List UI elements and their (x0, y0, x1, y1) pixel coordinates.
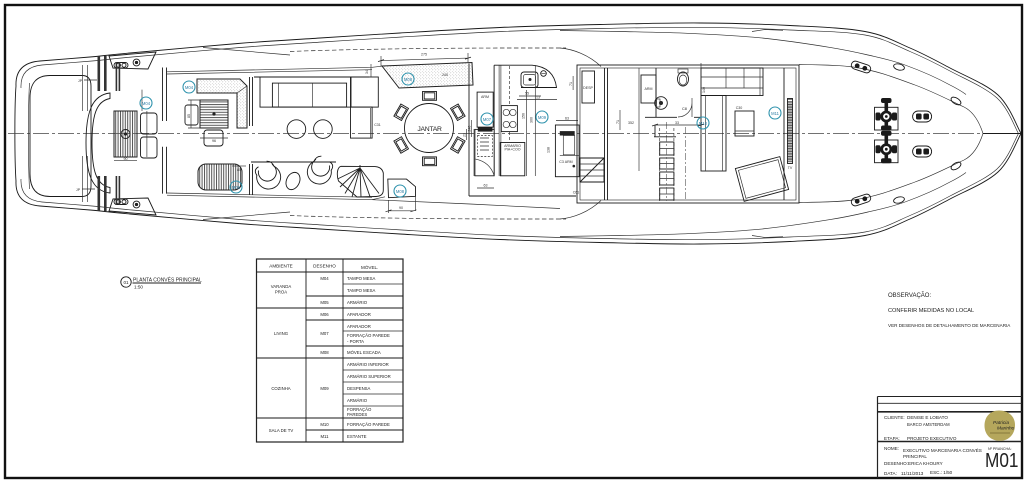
svg-text:PIA+COO: PIA+COO (504, 148, 520, 152)
svg-text:71: 71 (569, 82, 573, 86)
svg-text:ARM: ARM (645, 87, 653, 91)
svg-text:MÓVEL ESCADA: MÓVEL ESCADA (347, 350, 381, 355)
svg-text:275: 275 (421, 53, 427, 57)
svg-text:DATA:: DATA: (884, 471, 897, 476)
svg-text:M05: M05 (232, 185, 241, 190)
svg-text:PLANTA CONVÉS PRINCIPAL: PLANTA CONVÉS PRINCIPAL (133, 277, 202, 284)
svg-text:ERICA KHOURY: ERICA KHOURY (908, 461, 943, 466)
svg-text:FORRAÇÃO PAREDE: FORRAÇÃO PAREDE (347, 333, 390, 338)
svg-text:C8: C8 (682, 107, 687, 111)
svg-text:M04: M04 (320, 276, 329, 281)
svg-text:M11: M11 (320, 434, 329, 439)
svg-text:1:50: 1:50 (134, 285, 143, 290)
svg-text:ESTANTE: ESTANTE (347, 434, 367, 439)
svg-text:TAMPO MESA: TAMPO MESA (347, 288, 375, 293)
svg-text:COZINHA: COZINHA (271, 386, 290, 391)
svg-text:NOME:: NOME: (884, 446, 899, 451)
svg-text:BARCO AMSTERDAM: BARCO AMSTERDAM (907, 422, 950, 427)
svg-text:71: 71 (616, 120, 620, 124)
svg-text:TAMPO MESA: TAMPO MESA (347, 276, 375, 281)
svg-text:ARMÁRIO SUPERIOR: ARMÁRIO SUPERIOR (347, 374, 391, 379)
svg-text:DENISE E LOBATO: DENISE E LOBATO (907, 415, 948, 420)
svg-text:M04: M04 (185, 85, 194, 90)
svg-text:PAREDES: PAREDES (347, 412, 367, 417)
svg-text:M10: M10 (699, 121, 708, 126)
svg-text:DESENHO: DESENHO (313, 264, 336, 269)
svg-text:TV: TV (788, 166, 793, 170)
svg-text:M11: M11 (771, 111, 780, 116)
svg-text:PROJETO EXECUTIVO: PROJETO EXECUTIVO (907, 436, 957, 441)
svg-text:85: 85 (237, 168, 241, 172)
svg-text:M08: M08 (396, 189, 405, 194)
svg-text:13: 13 (536, 96, 540, 100)
svg-text:C30: C30 (736, 106, 743, 110)
svg-text:C61: C61 (573, 191, 580, 195)
svg-text:M04: M04 (142, 101, 151, 106)
svg-text:C3 ARM: C3 ARM (559, 160, 572, 164)
svg-text:AMBIENTE: AMBIENTE (269, 264, 292, 269)
svg-text:23: 23 (463, 133, 467, 137)
svg-text:352: 352 (628, 121, 634, 125)
svg-text:M10: M10 (320, 422, 329, 427)
svg-text:Patricia: Patricia (993, 420, 1009, 426)
svg-text:Marinho: Marinho (997, 426, 1015, 432)
svg-text:ESC.: 1/50: ESC.: 1/50 (930, 470, 953, 475)
svg-text:JANTAR: JANTAR (417, 126, 442, 133)
svg-text:VARANDA: VARANDA (271, 284, 292, 289)
svg-text:138: 138 (547, 147, 551, 153)
svg-text:FORRAÇÃO PAREDE: FORRAÇÃO PAREDE (347, 422, 390, 427)
svg-text:240: 240 (442, 73, 448, 77)
svg-text:63: 63 (565, 117, 569, 121)
svg-text:11/11/2013: 11/11/2013 (901, 471, 924, 476)
svg-text:85: 85 (187, 114, 191, 118)
svg-text:63: 63 (484, 184, 488, 188)
svg-text:VER DESENHOS DE DETALHAMENTO D: VER DESENHOS DE DETALHAMENTO DE MARCENAR… (888, 323, 1011, 328)
svg-text:DESPENSA: DESPENSA (347, 386, 371, 391)
svg-text:M05: M05 (320, 300, 329, 305)
svg-text:JP: JP (78, 79, 83, 83)
svg-text:M09: M09 (320, 386, 329, 391)
svg-text:CLIENTE:: CLIENTE: (884, 415, 905, 420)
svg-text:300: 300 (530, 117, 534, 123)
svg-text:90: 90 (124, 157, 128, 161)
svg-text:96: 96 (212, 139, 216, 143)
svg-text:M08: M08 (320, 350, 329, 355)
svg-text:- PORTA: - PORTA (347, 339, 364, 344)
svg-text:ARMÁRIO INFERIOR: ARMÁRIO INFERIOR (347, 362, 389, 367)
svg-text:33: 33 (675, 121, 679, 125)
svg-text:OBSERVAÇÃO:: OBSERVAÇÃO: (888, 292, 931, 299)
svg-text:34: 34 (365, 70, 369, 74)
svg-text:M07: M07 (320, 331, 329, 336)
svg-text:M07: M07 (483, 117, 492, 122)
svg-text:ARMÁRIO: ARMÁRIO (347, 398, 368, 403)
svg-text:M06: M06 (404, 77, 413, 82)
svg-text:PROA: PROA (275, 290, 287, 295)
svg-text:DESP: DESP (583, 86, 593, 90)
svg-text:156: 156 (522, 113, 526, 119)
svg-text:90: 90 (399, 206, 403, 210)
svg-text:APARADOR: APARADOR (347, 324, 371, 329)
svg-text:SALA DE TV: SALA DE TV (269, 428, 294, 433)
svg-text:PRINCIPAL: PRINCIPAL (903, 454, 927, 459)
svg-text:ETAPA:: ETAPA: (884, 436, 900, 441)
svg-text:EXECUTIVO MARCENARIA CONVÉS: EXECUTIVO MARCENARIA CONVÉS (903, 447, 982, 453)
svg-text:CONFERIR MEDIDAS NO LOCAL: CONFERIR MEDIDAS NO LOCAL (888, 308, 974, 314)
svg-text:APARADOR: APARADOR (347, 312, 371, 317)
svg-text:ARMÁRIO: ARMÁRIO (347, 300, 368, 305)
svg-text:MÓVEL.: MÓVEL. (361, 264, 378, 270)
svg-text:01: 01 (123, 280, 129, 285)
svg-text:M01: M01 (985, 449, 1019, 472)
svg-text:DESENHO:: DESENHO: (884, 461, 908, 466)
svg-text:ARM: ARM (481, 95, 489, 99)
svg-text:55: 55 (525, 92, 529, 96)
svg-text:M09: M09 (538, 115, 547, 120)
svg-text:JP: JP (76, 188, 81, 192)
svg-text:140: 140 (702, 87, 706, 93)
svg-text:LIVING: LIVING (274, 331, 289, 336)
svg-text:M06: M06 (320, 312, 329, 317)
svg-text:240: 240 (468, 126, 472, 132)
svg-text:C31: C31 (374, 123, 381, 127)
